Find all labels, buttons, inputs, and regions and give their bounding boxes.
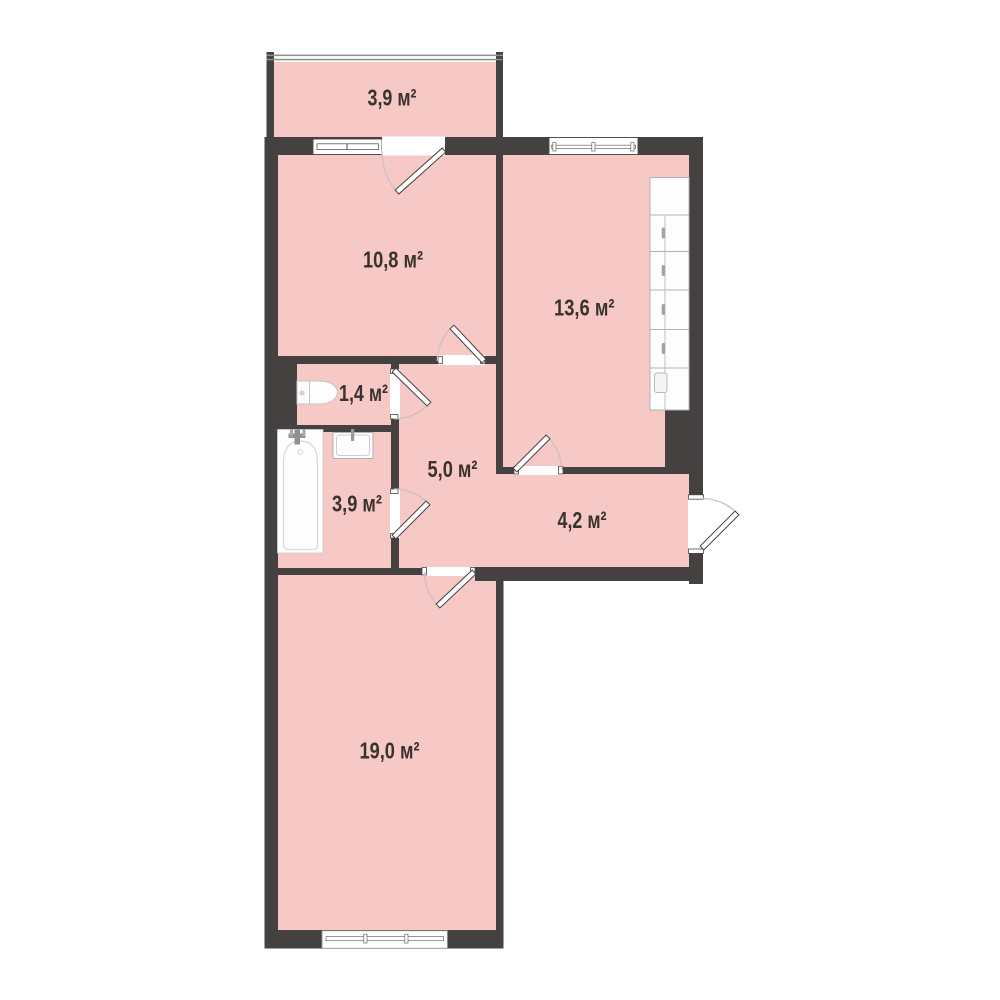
svg-text:5,0 м²: 5,0 м² bbox=[428, 456, 478, 482]
svg-text:3,9 м²: 3,9 м² bbox=[368, 85, 417, 111]
svg-text:1,4 м²: 1,4 м² bbox=[339, 380, 388, 406]
svg-text:3,9 м²: 3,9 м² bbox=[332, 491, 382, 517]
svg-text:13,6 м²: 13,6 м² bbox=[554, 295, 615, 321]
svg-text:4,2 м²: 4,2 м² bbox=[558, 507, 607, 533]
svg-text:10,8 м²: 10,8 м² bbox=[363, 247, 423, 273]
svg-text:19,0 м²: 19,0 м² bbox=[360, 738, 420, 764]
